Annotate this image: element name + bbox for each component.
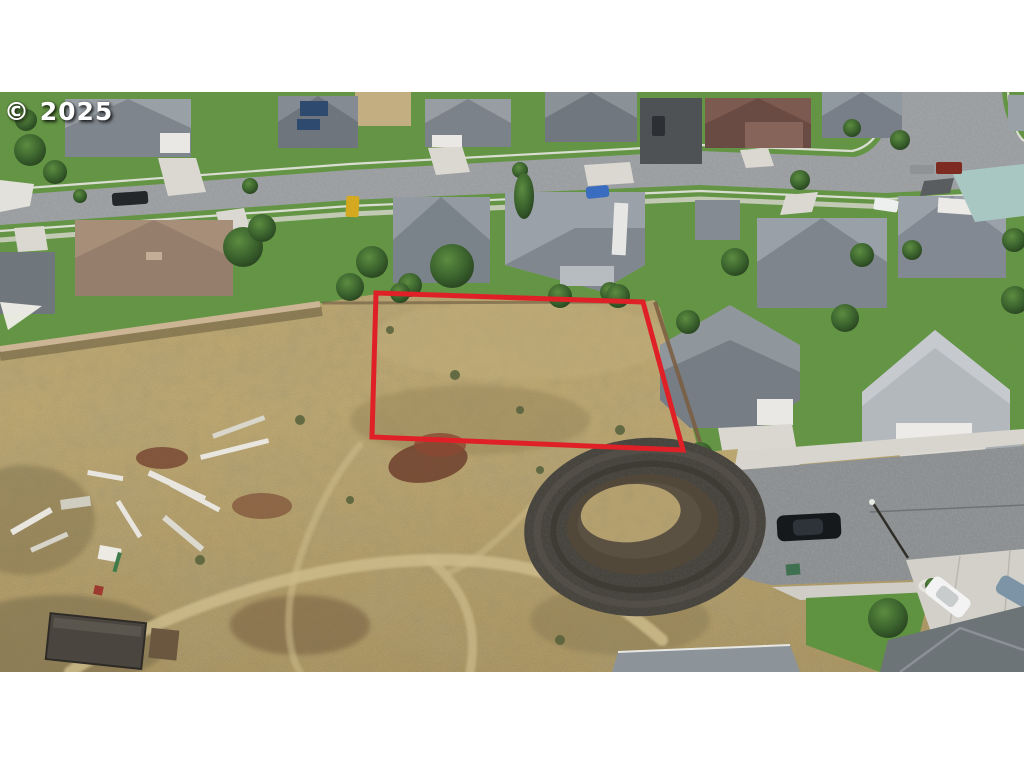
house bbox=[1008, 95, 1024, 131]
house bbox=[545, 92, 637, 142]
utility-box bbox=[786, 563, 801, 575]
house bbox=[822, 92, 902, 138]
pickup-truck-red bbox=[936, 162, 962, 174]
garage-door bbox=[757, 399, 793, 425]
house-tan bbox=[75, 220, 233, 296]
dirt-patch bbox=[355, 92, 411, 126]
asphalt-pad bbox=[640, 98, 702, 164]
utility-trailer bbox=[910, 165, 934, 174]
parked-car-dark bbox=[652, 116, 665, 136]
parked-rv bbox=[612, 203, 629, 256]
solar-panels bbox=[300, 101, 328, 116]
garage-door bbox=[160, 133, 190, 153]
watermark: © 2025 bbox=[4, 97, 113, 126]
car-roof bbox=[793, 518, 824, 536]
house-solar bbox=[278, 96, 358, 148]
screenshot: © 2025 bbox=[0, 0, 1024, 768]
letterbox-bottom bbox=[0, 672, 1024, 768]
letterbox-top bbox=[0, 0, 1024, 92]
house-maroon bbox=[705, 98, 811, 148]
van-blue bbox=[585, 185, 609, 199]
bus-yellow bbox=[345, 196, 359, 218]
parked-car-dark bbox=[112, 191, 149, 206]
garage-door bbox=[432, 135, 462, 147]
house bbox=[695, 200, 740, 240]
tree bbox=[868, 598, 908, 638]
house bbox=[425, 99, 511, 147]
debris-red-item bbox=[93, 585, 104, 596]
aerial-photo bbox=[0, 0, 1024, 768]
